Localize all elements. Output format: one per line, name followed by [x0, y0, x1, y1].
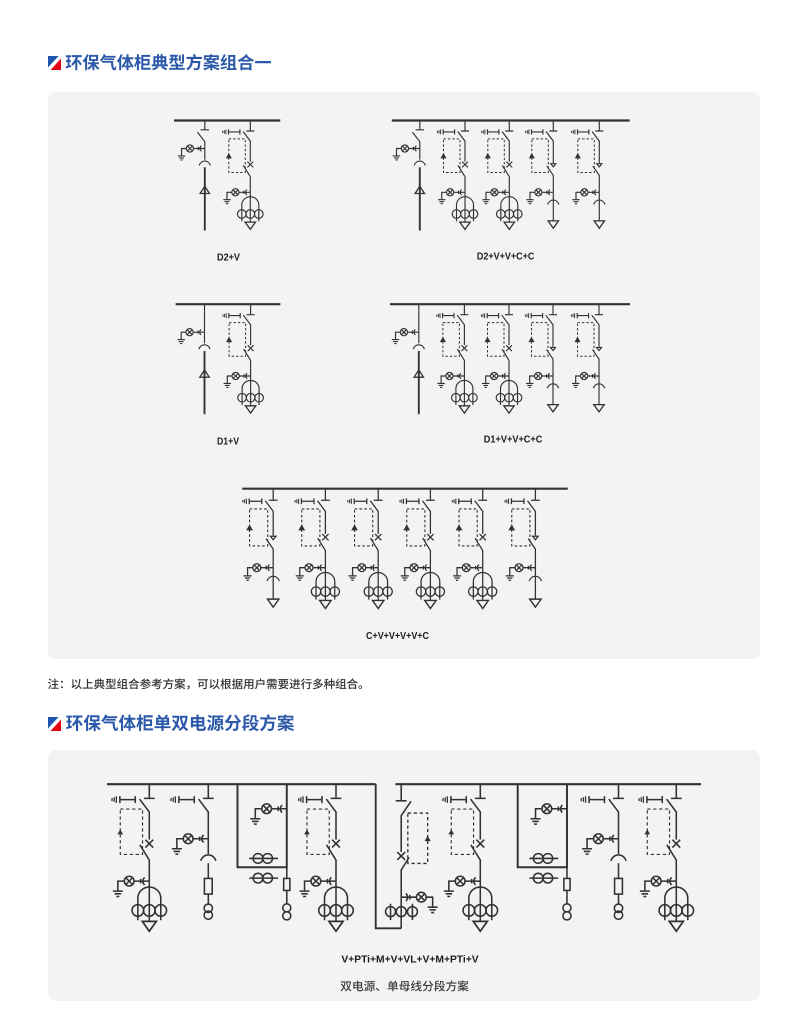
- svg-text:D1+V+V+C+C: D1+V+V+C+C: [484, 435, 543, 446]
- svg-text:C+V+V+V+V+C: C+V+V+V+V+C: [366, 631, 430, 642]
- svg-text:V+PTi+M+V+VL+V+M+PTi+V: V+PTi+M+V+VL+V+M+PTi+V: [341, 955, 478, 966]
- svg-text:D2+V+V+C+C: D2+V+V+C+C: [477, 252, 535, 263]
- svg-text:D2+V: D2+V: [217, 253, 240, 264]
- svg-text:D1+V: D1+V: [217, 436, 239, 447]
